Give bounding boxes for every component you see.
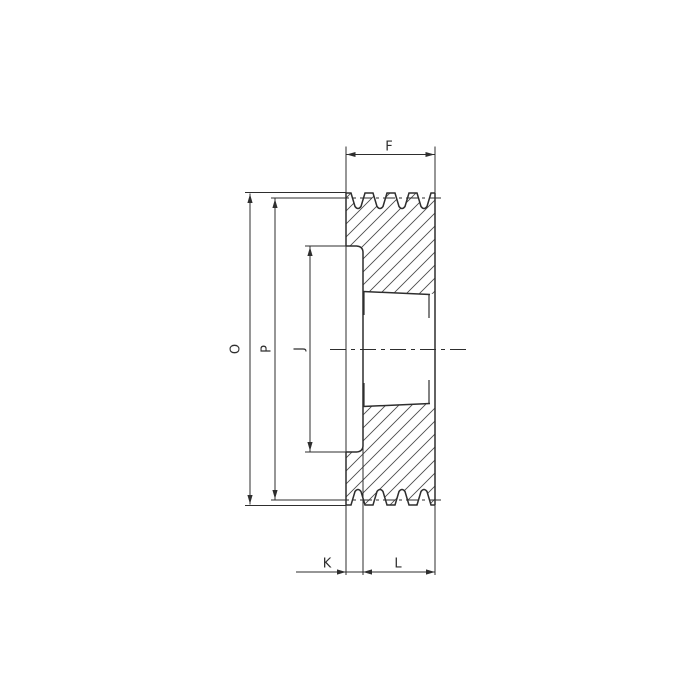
arrowhead-p-top	[272, 199, 277, 208]
arrowhead-f-right	[426, 152, 435, 157]
dim-label-f: F	[385, 140, 392, 155]
arrowhead-f-left	[347, 152, 356, 157]
dim-label-l: L	[394, 557, 402, 572]
arrowhead-o-bottom	[247, 495, 252, 504]
pulley-cross-section-drawing: F O P J K L	[0, 0, 700, 700]
taper-bore-bottom	[363, 404, 430, 407]
arrowhead-p-bottom	[272, 490, 277, 499]
groove-profile-top	[346, 193, 435, 209]
section-hatching	[16, 175, 700, 515]
arrowhead-l-right	[426, 569, 435, 574]
arrowhead-k-left	[337, 569, 346, 574]
dim-label-p: P	[260, 345, 275, 353]
recess-edge-top	[346, 246, 363, 253]
arrowhead-k-right-l-left	[363, 569, 372, 574]
arrowhead-o-top	[247, 194, 252, 203]
drawing-canvas: F O P J K L	[0, 0, 700, 700]
recess-edge-bottom	[346, 446, 363, 453]
arrowhead-j-bottom	[307, 442, 312, 451]
dim-label-o: O	[229, 344, 244, 354]
dim-label-k: K	[323, 557, 332, 572]
dim-label-j: J	[293, 347, 308, 352]
arrowhead-j-top	[307, 247, 312, 256]
